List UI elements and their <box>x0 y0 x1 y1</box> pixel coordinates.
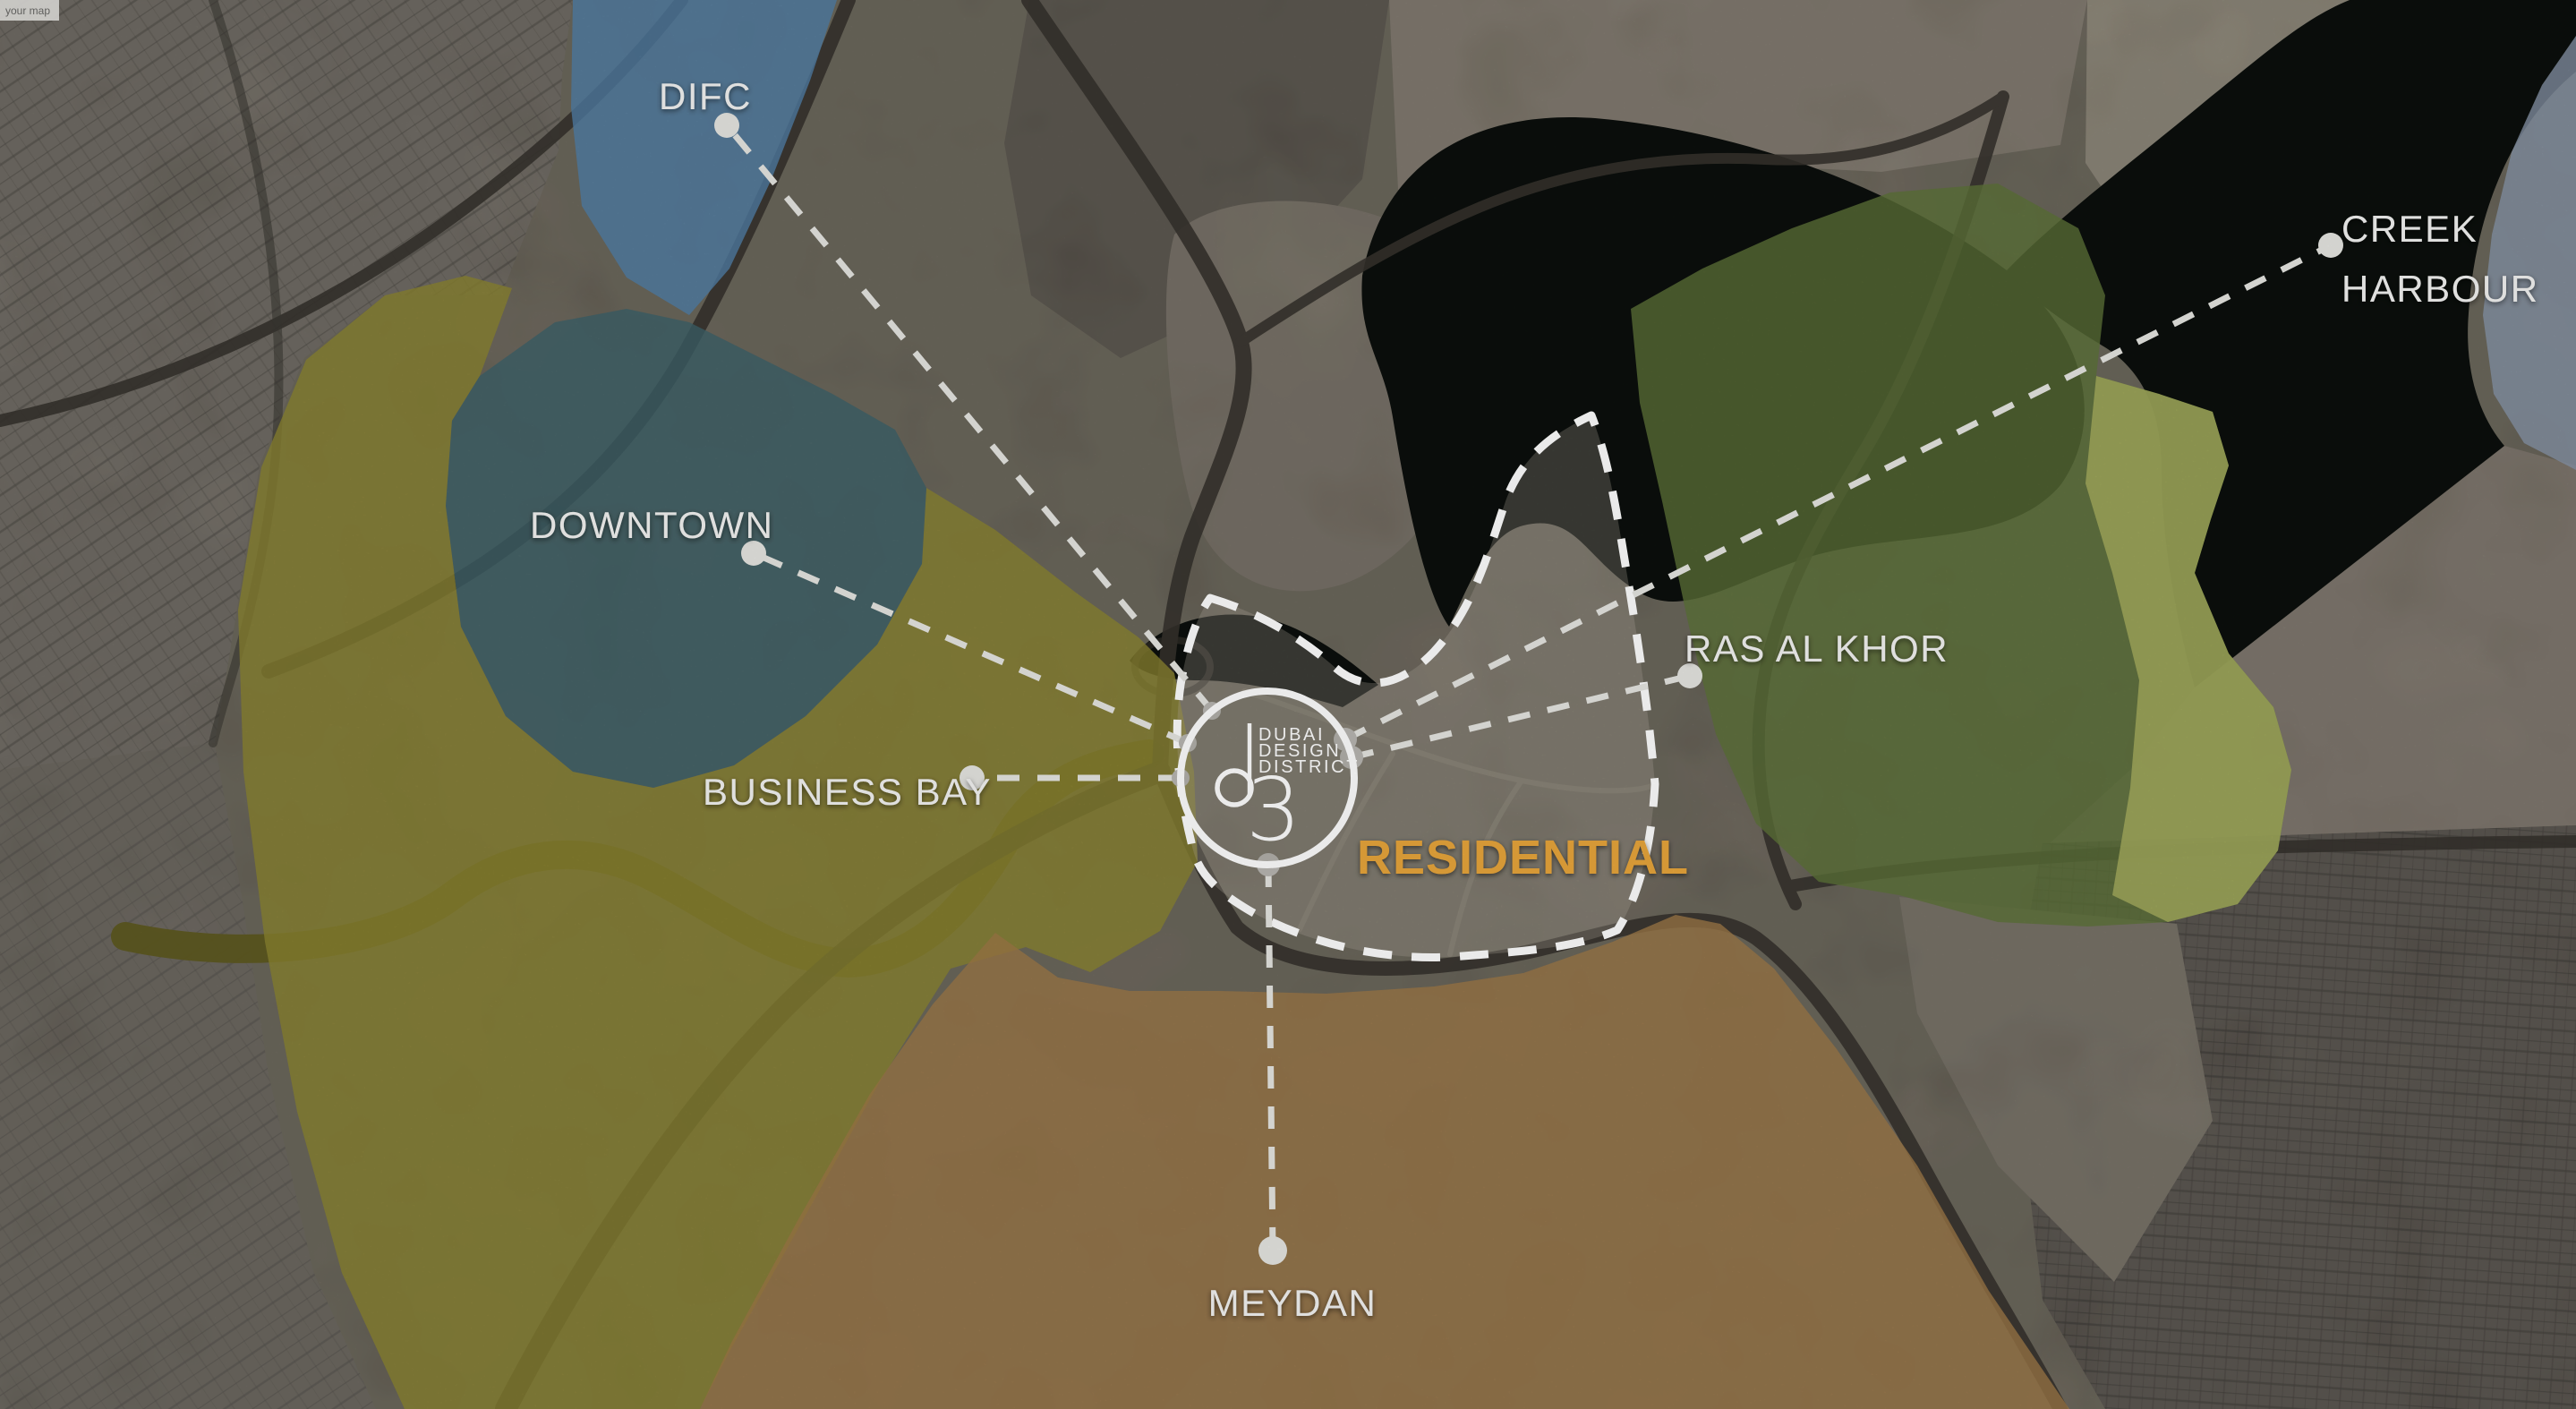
map-canvas: DUBAI DESIGN DISTRICT 3 DIFC DOWNTOWN BU… <box>0 0 2576 1409</box>
terrain-grain <box>0 0 2576 1409</box>
dubai-districts-map: DUBAI DESIGN DISTRICT 3 DIFC DOWNTOWN BU… <box>0 0 2576 1409</box>
watermark-text: your map <box>5 4 50 17</box>
watermark: your map <box>0 0 59 21</box>
